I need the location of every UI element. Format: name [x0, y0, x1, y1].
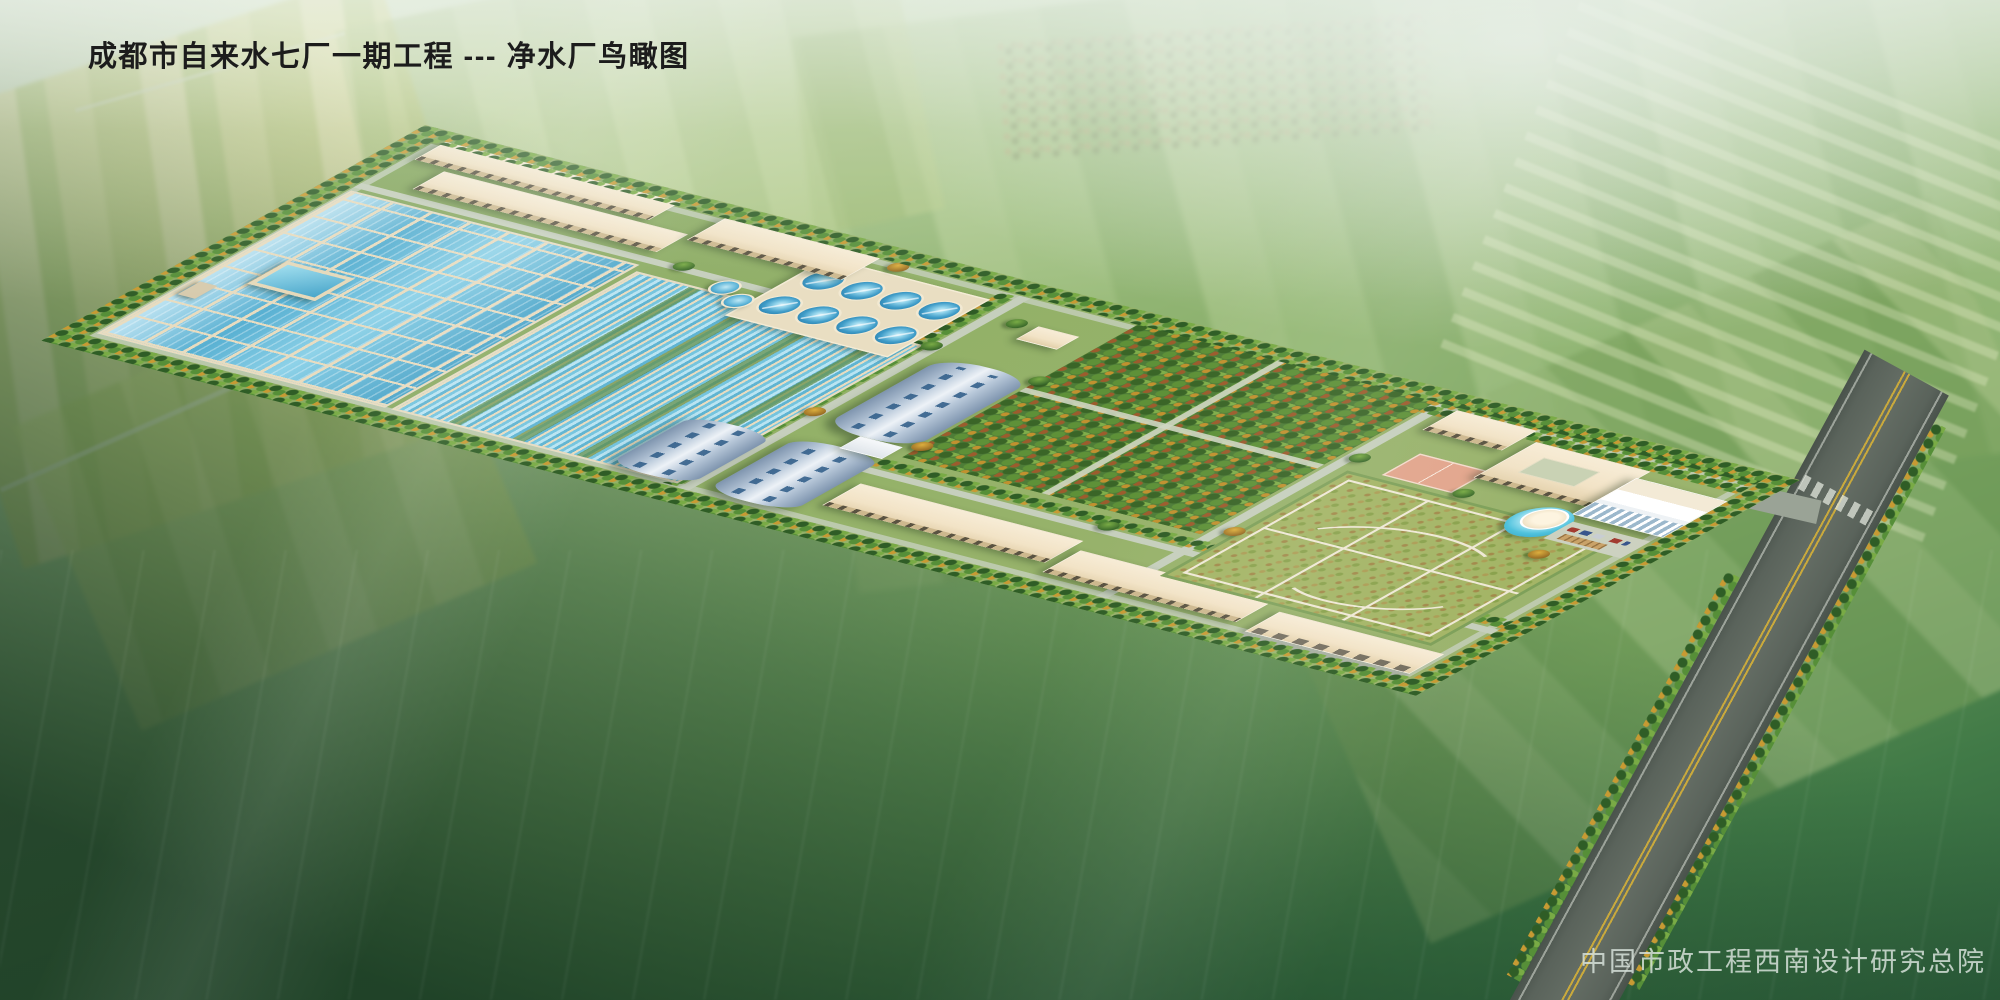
aerial-rendering: 成都市自来水七厂一期工程 --- 净水厂鸟瞰图 中国市政工程西南设计研究总院: [0, 0, 2000, 1000]
light-streaks: [0, 0, 2000, 1000]
credit-watermark: 中国市政工程西南设计研究总院: [1580, 946, 1986, 978]
title: 成都市自来水七厂一期工程 --- 净水厂鸟瞰图: [88, 40, 690, 75]
